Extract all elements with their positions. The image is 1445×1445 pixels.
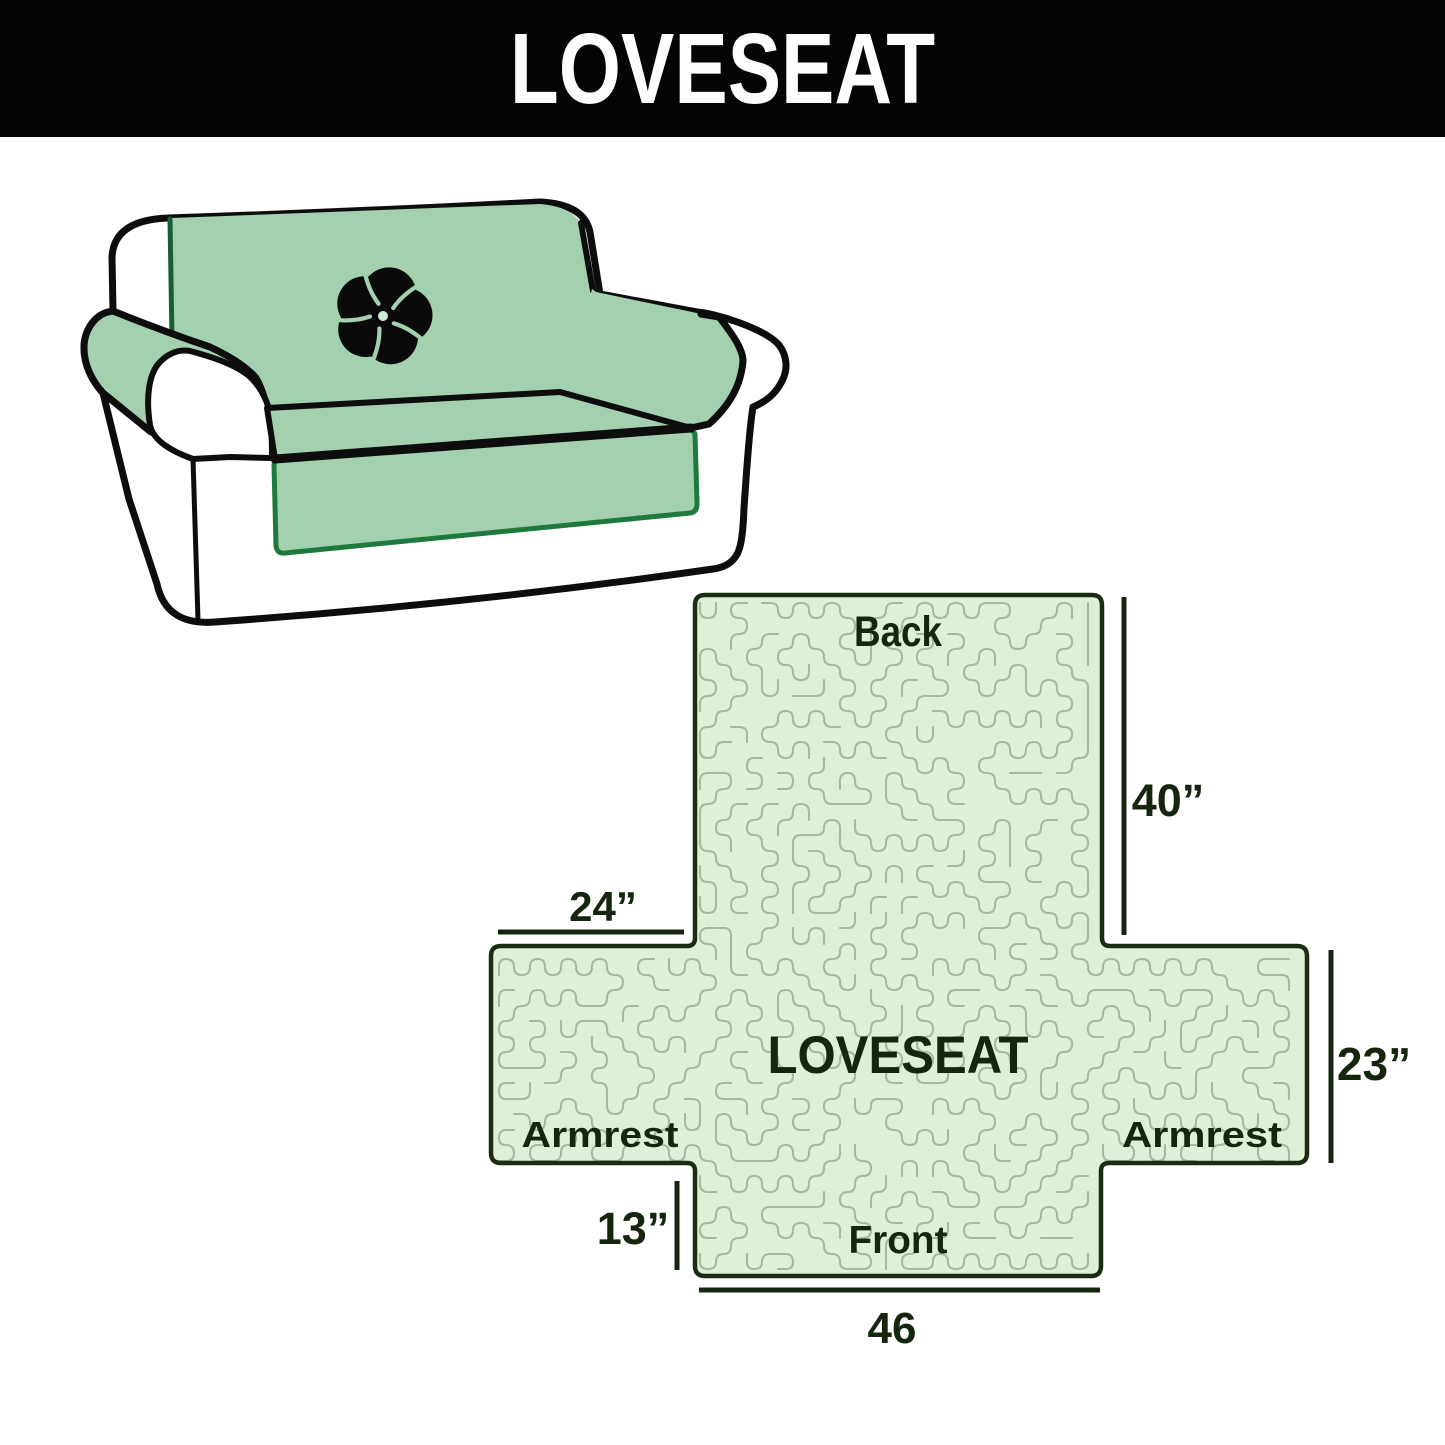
svg-text:40”: 40” [1132,775,1205,826]
svg-text:LOVESEAT: LOVESEAT [768,1026,1029,1085]
svg-text:23”: 23” [1337,1038,1411,1090]
svg-text:13”: 13” [597,1203,670,1254]
svg-text:Back: Back [854,608,942,656]
svg-text:Front: Front [849,1219,948,1262]
svg-text:Armrest: Armrest [522,1114,679,1155]
svg-text:Armrest: Armrest [1122,1114,1282,1155]
svg-text:46: 46 [868,1304,917,1353]
svg-text:24”: 24” [569,883,637,930]
